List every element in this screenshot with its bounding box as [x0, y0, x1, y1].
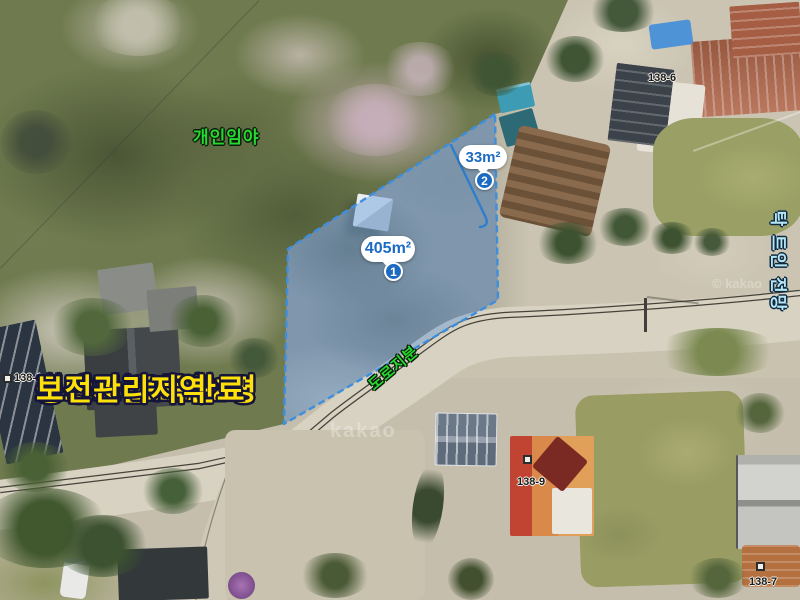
parcel2-number-badge: 2 — [475, 171, 494, 190]
lot-label-138-6: 138-6 — [648, 72, 676, 84]
lot-label-138-7: 138-7 — [749, 576, 777, 588]
parcel-overlay-layer — [0, 0, 800, 600]
open-view-label: 탁 트인 전망 — [768, 207, 793, 317]
info-line-zoning: 보전관리지역 — [36, 372, 208, 409]
parcel1-area-bubble: 405m² — [361, 236, 415, 262]
lot-label-138-9: 138-9 — [517, 476, 545, 488]
lot-marker-icon — [3, 374, 12, 383]
lot-marker-icon — [756, 562, 765, 571]
lot-marker-icon — [523, 455, 532, 464]
satellite-map: kakao © kakao 개인임야 도로지분 탁 트인 전망 405m² 1 … — [0, 0, 800, 600]
parcel2-area-bubble: 33m² — [459, 145, 507, 169]
forest-label: 개인임야 — [193, 123, 260, 148]
parcel1-number-badge: 1 — [384, 262, 403, 281]
